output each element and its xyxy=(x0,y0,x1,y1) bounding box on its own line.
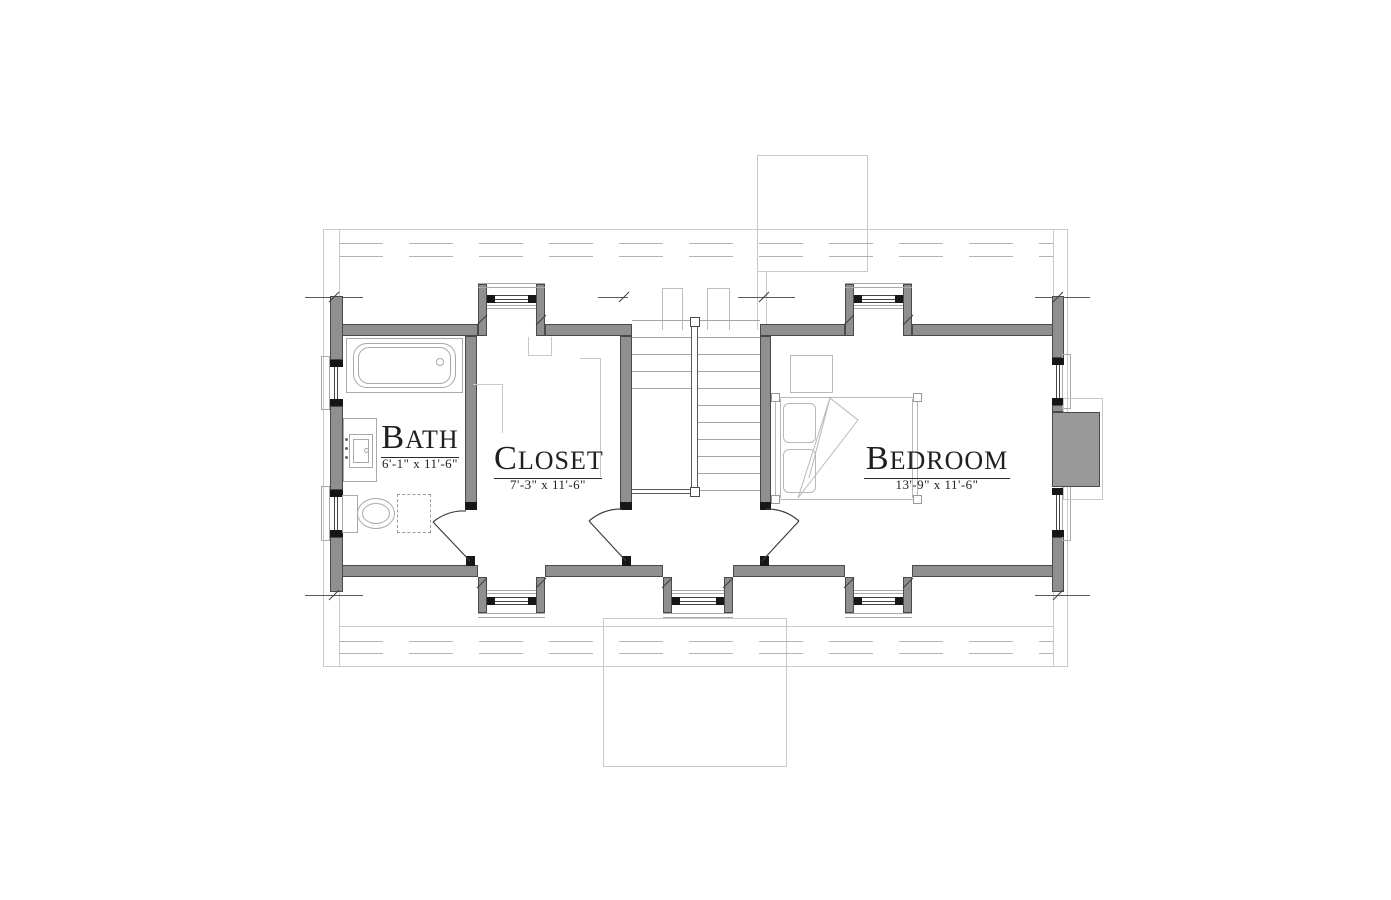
kneewall-line xyxy=(580,358,601,359)
room-dim-bath: 6'-1" x 11'-6" xyxy=(374,456,466,472)
dormer-column xyxy=(845,284,854,336)
dormer-cap-line xyxy=(845,613,912,614)
window-jamb xyxy=(528,295,536,303)
window-jamb xyxy=(330,360,343,367)
wall-left xyxy=(330,537,343,592)
room-label-closet: CLOSET xyxy=(494,440,602,479)
chimney-chase-line xyxy=(766,272,767,330)
window-glazing xyxy=(495,601,528,602)
dormer-cap-line xyxy=(845,283,912,284)
dormer-column xyxy=(536,284,545,336)
bed-post xyxy=(913,393,922,402)
wall-bottom xyxy=(912,565,1064,577)
centerline-tick xyxy=(738,297,795,298)
railing-post xyxy=(690,317,700,327)
window-glazing xyxy=(862,597,895,598)
dormer-column xyxy=(845,577,854,613)
window-jamb xyxy=(895,295,903,303)
window-glazing xyxy=(337,367,338,399)
wall-bottom xyxy=(330,565,478,577)
dormer-cap-line xyxy=(478,287,545,288)
tub-drain xyxy=(436,358,444,366)
roof-inner-line xyxy=(339,592,340,667)
window-jamb xyxy=(330,399,343,406)
window-sill-line xyxy=(487,305,536,306)
faucet-handle xyxy=(345,456,348,459)
wall-left xyxy=(330,296,343,360)
centerline-tick xyxy=(598,297,628,298)
window-sill-line xyxy=(854,590,903,591)
window-jamb xyxy=(528,597,536,605)
kneewall-line xyxy=(551,337,552,355)
window-sill-line xyxy=(487,308,536,309)
window-glazing xyxy=(495,604,528,605)
dormer-column xyxy=(724,577,733,613)
linen-access-dashed xyxy=(397,494,431,533)
dormer-cap-line xyxy=(845,287,912,288)
window-glazing xyxy=(495,295,528,296)
door-jamb-stub xyxy=(760,556,769,566)
window-jamb xyxy=(1052,530,1064,537)
eave-dashed-line xyxy=(339,641,1053,642)
dormer-column xyxy=(478,284,487,336)
wall-stair-bedroom xyxy=(760,336,771,510)
window-glazing xyxy=(495,302,528,303)
window-jamb xyxy=(487,597,495,605)
window-glazing xyxy=(1059,495,1060,530)
window-sill-line xyxy=(854,308,903,309)
window-glazing xyxy=(495,597,528,598)
dormer-cap-line xyxy=(663,613,733,614)
window-glazing xyxy=(1056,495,1057,530)
nightstand xyxy=(790,355,833,393)
window-sill-line xyxy=(487,593,536,594)
window-sill-line xyxy=(672,590,724,591)
headboard-line xyxy=(780,399,781,498)
stair-railing-bottom xyxy=(632,489,691,494)
dormer-column xyxy=(478,577,487,613)
window-glazing xyxy=(495,299,528,300)
wall-bottom xyxy=(733,565,845,577)
roof-inner-line xyxy=(339,626,1053,627)
kneewall-line xyxy=(502,384,503,433)
wall-closet-stair xyxy=(620,336,632,510)
window-jamb xyxy=(854,597,862,605)
room-dim-closet: 7'-3" x 11'-6" xyxy=(500,477,596,493)
window-glazing xyxy=(862,302,895,303)
chimney xyxy=(1052,412,1100,487)
kneewall-line xyxy=(473,384,503,385)
window-glazing xyxy=(680,601,716,602)
window-jamb xyxy=(716,597,724,605)
window-sill-line xyxy=(854,593,903,594)
wall-right xyxy=(1052,537,1064,592)
stair-railing xyxy=(691,322,698,492)
window-jamb xyxy=(1052,358,1064,365)
dormer-column xyxy=(903,577,912,613)
window-glazing xyxy=(862,601,895,602)
wall-top xyxy=(330,324,478,336)
dormer-cap-line xyxy=(663,617,733,618)
dormer-cap-line xyxy=(478,613,545,614)
roof-inner-line xyxy=(1053,229,1054,296)
dormer-column xyxy=(536,577,545,613)
pillow xyxy=(783,449,816,493)
bed-post xyxy=(913,495,922,504)
wall-bottom xyxy=(545,565,663,577)
wall-top xyxy=(545,324,632,336)
window-glazing xyxy=(1059,365,1060,398)
wall-bath-closet xyxy=(465,336,477,510)
room-dim-bedroom: 13'-9" x 11'-6" xyxy=(889,477,985,493)
dormer-cap-line xyxy=(478,617,545,618)
window-sill-line xyxy=(854,305,903,306)
stair-treads-left xyxy=(632,320,691,392)
window-glazing xyxy=(334,497,335,530)
wall-left xyxy=(330,406,343,490)
door-jamb-stub xyxy=(466,556,475,566)
faucet-handle xyxy=(345,447,348,450)
window-sill-line xyxy=(487,590,536,591)
roof-inner-line xyxy=(339,229,340,296)
window-glazing xyxy=(680,604,716,605)
centerline-tick xyxy=(305,595,363,596)
faucet xyxy=(364,448,369,453)
pillow xyxy=(783,403,816,443)
eave-dashed-line xyxy=(339,653,1053,654)
room-label-bedroom: BEDROOM xyxy=(864,440,1010,479)
roof-inner-line xyxy=(1053,592,1054,667)
window-jamb xyxy=(672,597,680,605)
window-sill-line xyxy=(672,593,724,594)
dormer-column xyxy=(663,577,672,613)
chimney-roof-outline xyxy=(757,155,868,272)
faucet-handle xyxy=(345,438,348,441)
eave-dashed-line xyxy=(339,256,1053,257)
wall-end-cap xyxy=(465,502,477,510)
railing-post xyxy=(690,487,700,497)
floor-plan: BATH 6'-1" x 11'-6" CLOSET 7'-3" x 11'-6… xyxy=(0,0,1391,900)
eave-dashed-line xyxy=(339,243,1053,244)
wall-top xyxy=(760,324,845,336)
window-glazing xyxy=(680,597,716,598)
wall-top xyxy=(912,324,1064,336)
window-glazing xyxy=(337,497,338,530)
bed-post xyxy=(771,495,780,504)
wall-end-cap xyxy=(760,502,771,510)
kneewall-line xyxy=(528,337,529,355)
dormer-cap-line xyxy=(478,283,545,284)
kneewall-line xyxy=(528,355,552,356)
window-glazing xyxy=(862,604,895,605)
window-glazing xyxy=(1056,365,1057,398)
window-glazing xyxy=(334,367,335,399)
room-label-bath: BATH xyxy=(381,419,459,458)
window-glazing xyxy=(862,299,895,300)
window-jamb xyxy=(487,295,495,303)
bed-post xyxy=(771,393,780,402)
stair-treads-right xyxy=(697,320,760,492)
window-glazing xyxy=(862,295,895,296)
window-jamb xyxy=(854,295,862,303)
dormer-cap-line xyxy=(845,617,912,618)
wall-right xyxy=(1052,296,1064,358)
window-jamb xyxy=(895,597,903,605)
centerline-tick xyxy=(1035,595,1090,596)
dormer-column xyxy=(903,284,912,336)
wall-end-cap xyxy=(620,502,632,510)
door-jamb-stub xyxy=(622,556,631,566)
